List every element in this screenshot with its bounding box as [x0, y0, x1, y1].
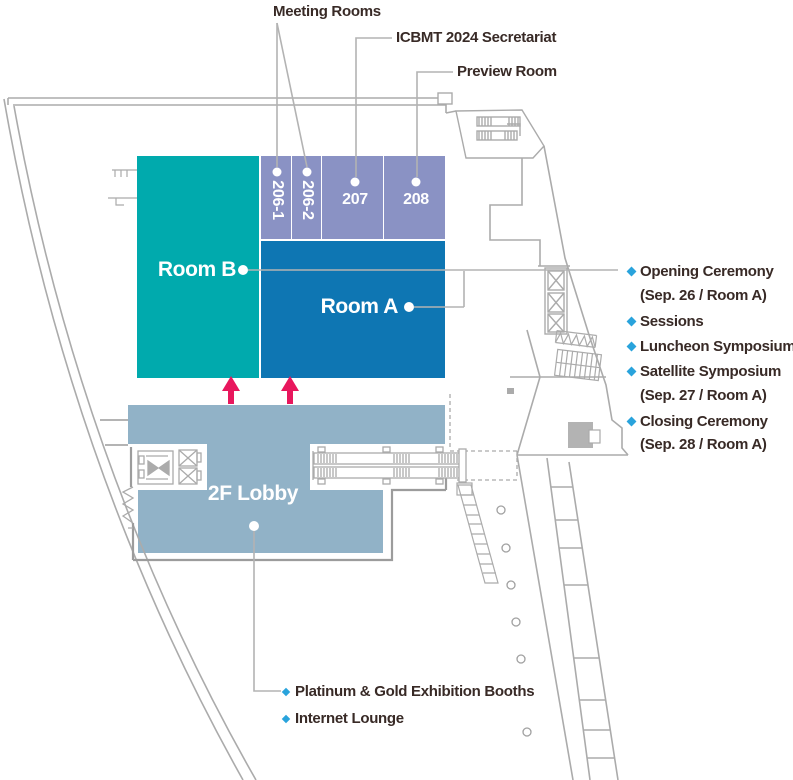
bullet-diamond-icon [282, 688, 290, 696]
lobby-top-band [128, 405, 445, 444]
event-line: Sessions [640, 313, 703, 331]
bullet-diamond-icon [282, 715, 290, 723]
lobby-label: 2F Lobby [193, 483, 313, 505]
door-details [108, 170, 137, 528]
bullet-diamond-icon [627, 367, 637, 377]
preview-room-label: Preview Room [457, 63, 557, 81]
room-a-label: Room A [300, 296, 398, 318]
lobby-escalator [313, 447, 466, 484]
event-line: Opening Ceremony [640, 263, 774, 281]
curtain-wall-panels [551, 487, 615, 758]
column-circles [497, 506, 531, 736]
lower-escalator [457, 483, 498, 583]
bullet-diamond-icon [627, 342, 637, 352]
wall-end-stub [438, 93, 452, 104]
bullet-diamond-icon [627, 417, 637, 427]
lobby-feature-line: Internet Lounge [295, 710, 404, 728]
lobby-feature-line: Platinum & Gold Exhibition Booths [295, 683, 534, 701]
bullet-diamond-icon [627, 317, 637, 327]
event-line: (Sep. 26 / Room A) [640, 287, 767, 305]
room-206-1-label: 206-1 [268, 175, 286, 225]
stairs-upper [555, 331, 596, 348]
event-line: (Sep. 28 / Room A) [640, 436, 767, 454]
elevator-core [545, 268, 567, 334]
meeting-rooms-label: Meeting Rooms [273, 3, 381, 21]
stair-hall [456, 110, 544, 158]
lobby-elevators [138, 450, 201, 484]
column-square [507, 388, 514, 394]
entrance-arrow-icons [222, 376, 299, 404]
event-line: Satellite Symposium [640, 363, 781, 381]
stairs-lower [555, 349, 602, 380]
event-line: Luncheon Symposiums [640, 338, 793, 356]
service-shaft-block [568, 422, 593, 448]
room-b-label: Room B [140, 259, 236, 281]
event-line: (Sep. 27 / Room A) [640, 387, 767, 405]
floor-plan: Meeting Rooms ICBMT 2024 Secretariat Pre… [0, 0, 793, 780]
dashed-guides [450, 394, 520, 480]
room-206-2-label: 206-2 [298, 175, 316, 225]
bullet-diamond-icon [627, 267, 637, 277]
room-207-label: 207 [330, 191, 380, 209]
service-shaft-door [589, 430, 600, 443]
room-208-label: 208 [391, 191, 441, 209]
stair-zigzag-left [123, 487, 133, 523]
secretariat-label: ICBMT 2024 Secretariat [396, 29, 556, 47]
event-line: Closing Ceremony [640, 413, 768, 431]
